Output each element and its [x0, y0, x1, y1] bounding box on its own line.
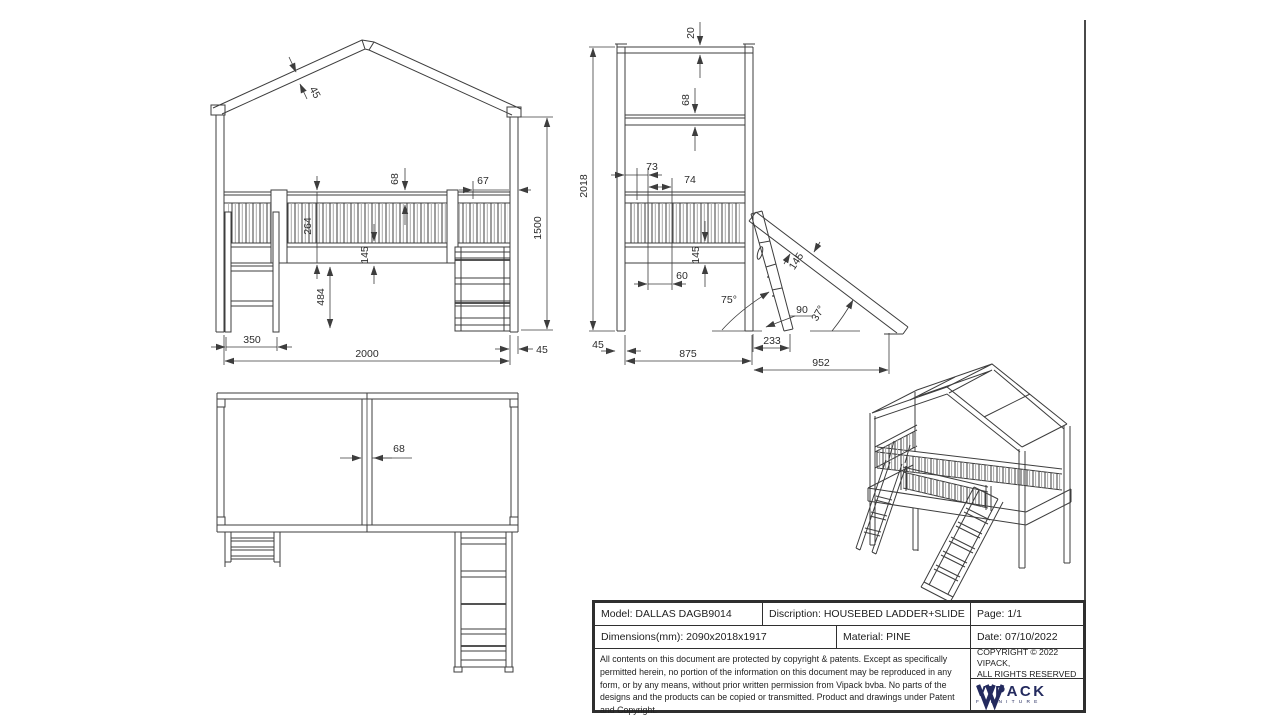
dim-ridge-beam: 20 [685, 27, 697, 39]
dim-railing-height: 264 [302, 217, 314, 235]
dim-ladder-run: 233 [763, 335, 781, 347]
top-view-structure [217, 393, 518, 672]
dim-under-clearance: 484 [315, 288, 327, 306]
dim-rail-beam: 68 [389, 173, 401, 185]
dim-gap-c: 60 [676, 270, 688, 282]
dim-gap-a: 73 [646, 161, 658, 173]
vipack-logo: VIPACK FURNITURE [970, 678, 1084, 711]
ladder-hand-slot [756, 246, 764, 260]
title-block-model: Model: DALLAS DAGB9014 [594, 602, 763, 626]
side-view-drawing: 20 68 73 74 2018 145 60 145 90 [575, 15, 940, 383]
title-block: Model: DALLAS DAGB9014 Discription: HOUS… [592, 600, 1086, 713]
title-block-date: Date: 07/10/2022 [970, 625, 1084, 649]
front-view-drawing: 45 68 67 264 145 484 350 2000 45 [180, 20, 570, 370]
dim-platform-thickness: 145 [359, 246, 371, 264]
dim-side-platform: 145 [690, 246, 702, 264]
dim-roof-beam: 45 [307, 85, 323, 101]
title-block-page: Page: 1/1 [970, 602, 1084, 626]
front-slide [455, 247, 510, 331]
top-slide [454, 532, 513, 672]
dim-rail-end-offset: 67 [477, 175, 489, 187]
title-block-material: Material: PINE [836, 625, 971, 649]
title-block-legal-text: All contents on this document are protec… [594, 648, 971, 711]
dim-eave-height: 1500 [532, 216, 544, 240]
dim-eave-beam: 68 [680, 94, 692, 106]
top-ladder [225, 532, 280, 567]
front-railing-slats [228, 203, 508, 243]
dim-gap-b: 74 [684, 174, 696, 186]
side-ladder [751, 211, 793, 331]
dim-side-post: 45 [592, 339, 604, 351]
top-view-drawing: 68 [200, 385, 540, 677]
dim-ladder-width: 350 [243, 334, 261, 346]
dim-bed-length: 2000 [355, 348, 379, 360]
dim-ladder-gap: 90 [796, 304, 808, 316]
dim-bed-depth: 875 [679, 348, 697, 360]
top-view-dimensions: 68 [340, 443, 412, 458]
side-slide [749, 212, 908, 334]
dim-divider-width: 68 [393, 443, 405, 455]
title-block-dimensions: Dimensions(mm): 2090x2018x1917 [594, 625, 837, 649]
dim-total-height: 2018 [578, 174, 590, 198]
front-view-structure [211, 40, 521, 332]
vipack-chevron-icon [976, 682, 1004, 708]
dim-ladder-angle: 75° [721, 294, 737, 306]
dim-slide-width: 145 [787, 251, 807, 272]
title-block-copyright: COPYRIGHT © 2022 VIPACK, ALL RIGHTS RESE… [970, 648, 1084, 679]
side-railing-slats [628, 203, 742, 243]
dim-slide-angle: 37° [809, 304, 827, 324]
title-block-description: Discription: HOUSEBED LADDER+SLIDE [762, 602, 971, 626]
copyright-line-1: COPYRIGHT © 2022 VIPACK, [977, 647, 1083, 669]
iso-structure [856, 364, 1071, 602]
dim-post-width: 45 [536, 344, 548, 356]
side-view-structure [615, 44, 908, 334]
isometric-view-drawing [828, 352, 1086, 604]
drawing-sheet: { "drawing": { "front_view": { "dims": {… [0, 0, 1280, 720]
